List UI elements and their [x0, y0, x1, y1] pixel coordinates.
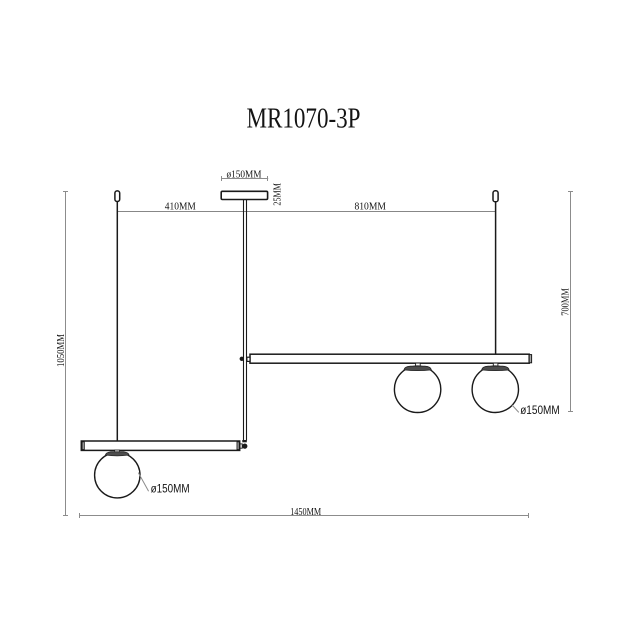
svg-text:810MM: 810MM	[354, 202, 386, 213]
svg-text:1050MM: 1050MM	[56, 333, 67, 367]
svg-text:MR1070-3P: MR1070-3P	[247, 102, 361, 134]
svg-text:410MM: 410MM	[165, 202, 197, 213]
svg-text:ø150MM: ø150MM	[520, 403, 560, 417]
svg-text:1450MM: 1450MM	[290, 507, 322, 518]
svg-text:700MM: 700MM	[561, 288, 572, 316]
svg-text:ø150MM: ø150MM	[227, 169, 263, 180]
svg-text:ø150MM: ø150MM	[151, 481, 190, 495]
svg-text:25MM: 25MM	[272, 183, 283, 206]
